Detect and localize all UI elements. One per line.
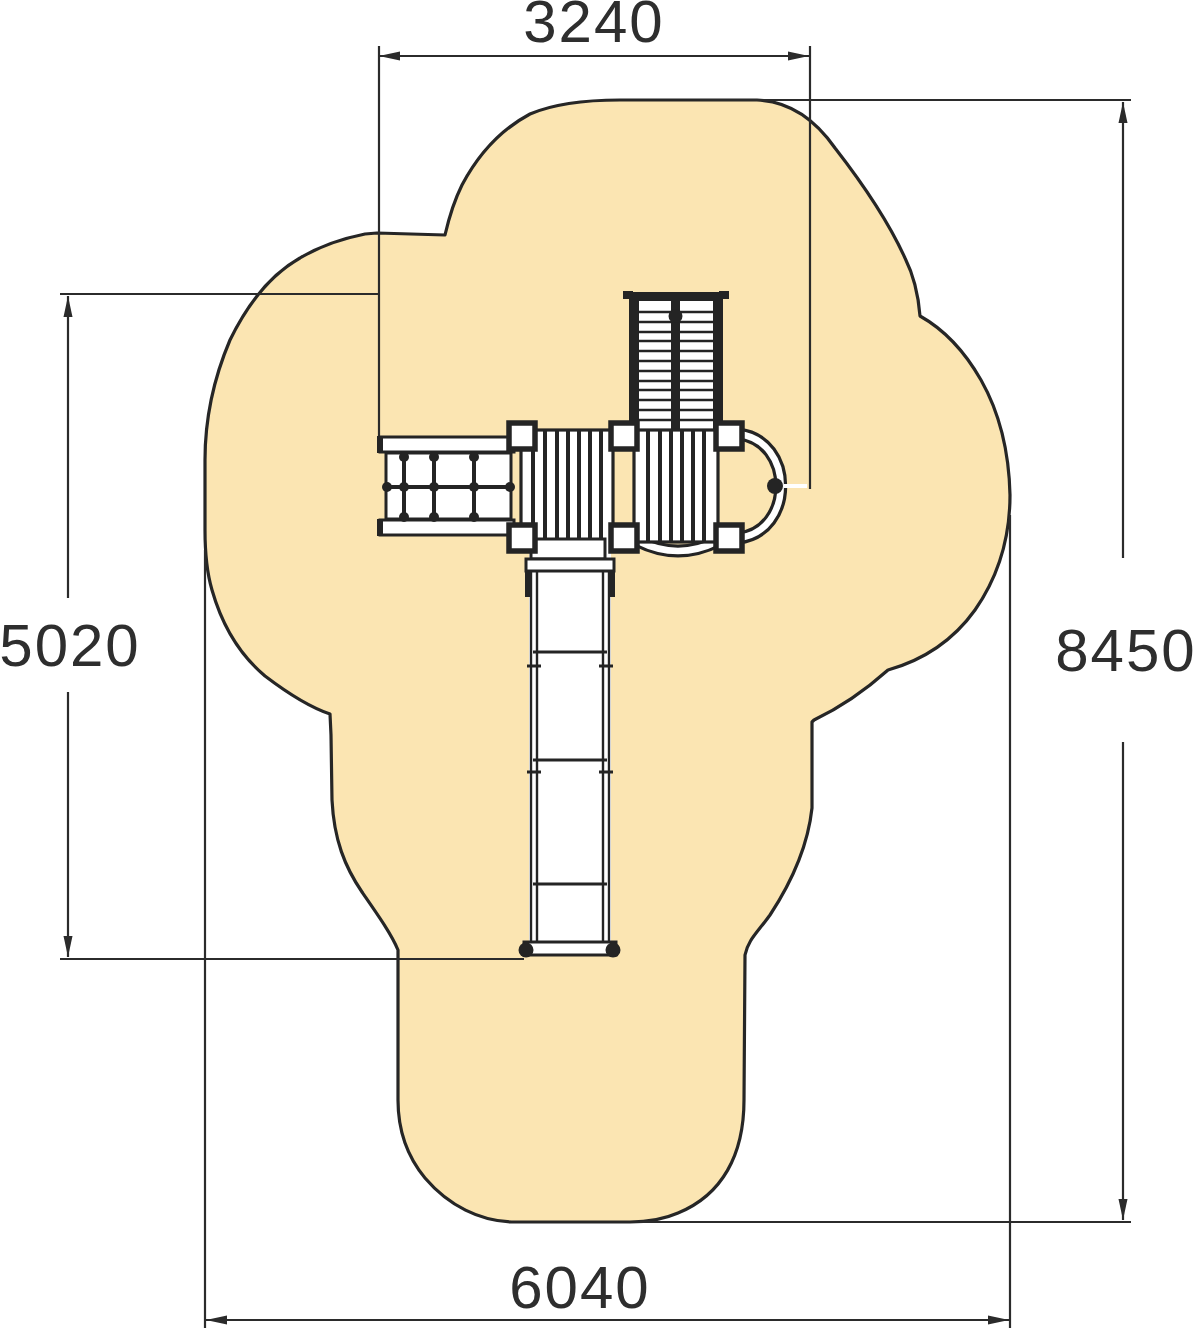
- arrow-right-down: [1119, 1199, 1128, 1220]
- slide-exit-knob-right: [606, 943, 621, 958]
- slide-flare-right: [608, 571, 615, 597]
- slide-flare-left: [525, 571, 532, 597]
- post-top-left: [509, 423, 535, 449]
- post-top-right: [716, 423, 742, 449]
- stairs-handle-knob: [669, 309, 683, 323]
- dimension-label-bottom: 6040: [509, 1254, 650, 1321]
- slide-exit-bar: [524, 942, 616, 955]
- dimension-label-top: 3240: [523, 0, 664, 55]
- arrow-bottom-right: [988, 1316, 1009, 1325]
- dimension-label-right: 8450: [1055, 617, 1196, 684]
- stairs-top-nub-left: [623, 291, 633, 299]
- dimension-label-left: 5020: [0, 612, 141, 679]
- post-bottom-right: [716, 525, 742, 551]
- arc-apex-knob: [767, 478, 783, 494]
- arrow-left-up: [64, 296, 73, 317]
- arrow-bottom-left: [206, 1316, 227, 1325]
- stairs-top-nub-right: [719, 291, 729, 299]
- slide: [519, 538, 621, 958]
- net-rail-top: [380, 437, 514, 452]
- stairs-rail-right: [713, 293, 723, 432]
- slide-bed: [529, 538, 611, 950]
- platform-deck-right: [634, 430, 718, 542]
- arrow-top-right: [788, 52, 809, 61]
- stairs: [623, 291, 729, 432]
- net-rail-top-cap: [377, 436, 383, 453]
- arrow-right-up: [1119, 102, 1128, 123]
- net-rail-bottom-cap: [377, 519, 383, 536]
- playground-plan-drawing: 3240 5020 8450 6040: [0, 0, 1200, 1330]
- plan-drawing-svg: 3240 5020 8450 6040: [0, 0, 1200, 1330]
- slide-entry-box: [531, 539, 605, 559]
- post-bottom-left: [509, 525, 535, 551]
- slide-exit-knob-left: [519, 943, 534, 958]
- post-top-middle: [611, 423, 637, 449]
- post-bottom-middle: [611, 525, 637, 551]
- net-rail-bottom: [380, 520, 514, 535]
- climbing-net: [377, 436, 515, 536]
- arrow-left-down: [64, 936, 73, 957]
- slide-entry-bar: [526, 559, 614, 571]
- deck1-planks: [533, 430, 601, 542]
- stairs-rail-left: [629, 293, 639, 432]
- arrow-top-left: [379, 52, 400, 61]
